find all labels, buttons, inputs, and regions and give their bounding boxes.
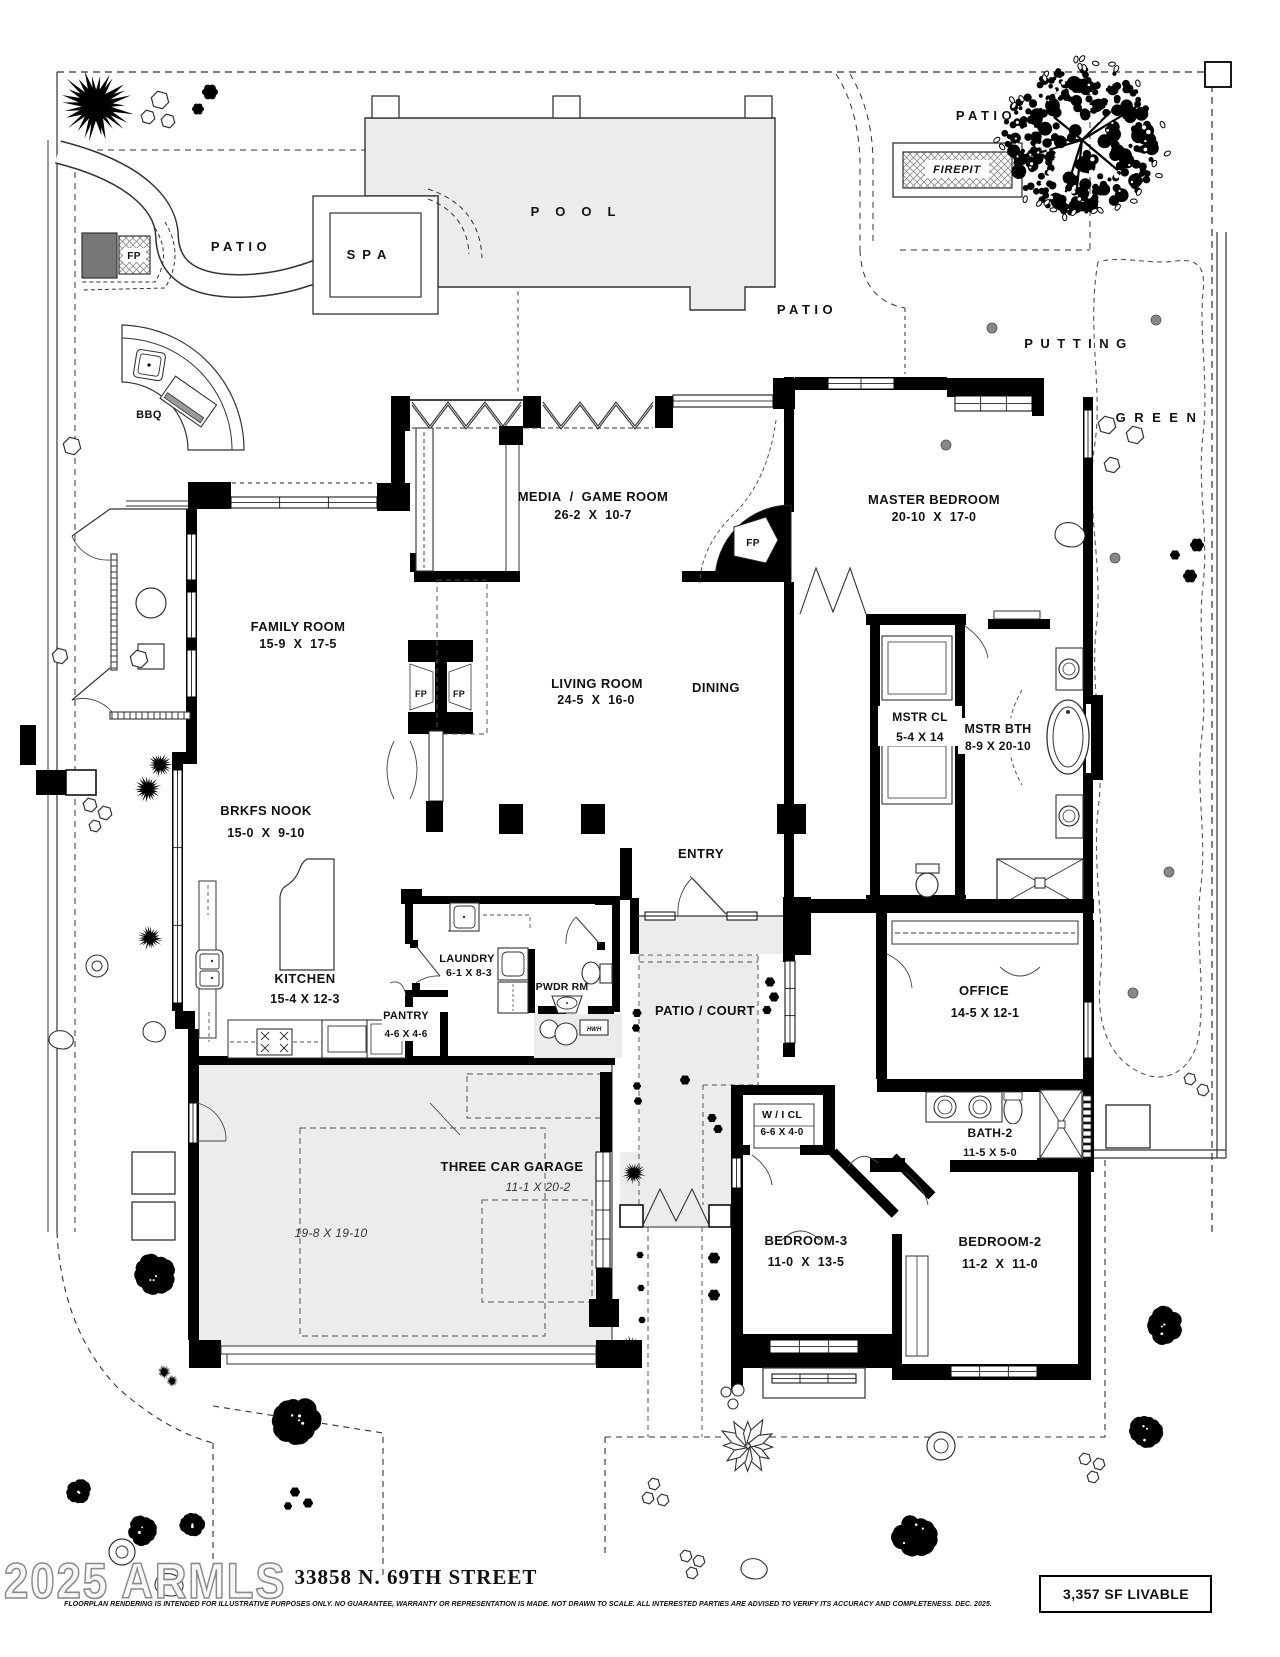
- svg-text:15-9 X 17-5: 15-9 X 17-5: [259, 637, 336, 651]
- svg-text:26-2 X 10-7: 26-2 X 10-7: [554, 508, 631, 522]
- svg-text:PWDR RM: PWDR RM: [536, 981, 589, 993]
- svg-text:5-4 X 14: 5-4 X 14: [896, 730, 944, 744]
- svg-text:ENTRY: ENTRY: [678, 846, 724, 861]
- svg-text:4-6 X 4-6: 4-6 X 4-6: [385, 1029, 428, 1040]
- svg-text:FP: FP: [127, 251, 140, 262]
- svg-text:20-10 X 17-0: 20-10 X 17-0: [892, 510, 977, 524]
- svg-text:PANTRY: PANTRY: [383, 1010, 429, 1022]
- svg-text:LAUNDRY: LAUNDRY: [439, 953, 495, 965]
- svg-text:SPA: SPA: [347, 247, 394, 262]
- svg-text:FLOORPLAN RENDERING IS INTENDE: FLOORPLAN RENDERING IS INTENDED FOR ILLU…: [64, 1600, 992, 1608]
- svg-text:POOL: POOL: [531, 204, 632, 219]
- svg-text:15-4 X 12-3: 15-4 X 12-3: [270, 992, 340, 1006]
- svg-text:FP: FP: [415, 689, 427, 699]
- svg-text:BRKFS NOOK: BRKFS NOOK: [220, 803, 312, 818]
- svg-text:MEDIA / GAME ROOM: MEDIA / GAME ROOM: [518, 489, 669, 504]
- svg-text:11-0 X 13-5: 11-0 X 13-5: [768, 1255, 845, 1269]
- svg-text:BATH-2: BATH-2: [968, 1126, 1013, 1140]
- svg-text:KITCHEN: KITCHEN: [274, 971, 335, 986]
- svg-text:HWH: HWH: [587, 1027, 602, 1033]
- svg-text:FIREPIT: FIREPIT: [933, 164, 981, 176]
- svg-text:11-5 X 5-0: 11-5 X 5-0: [963, 1147, 1017, 1159]
- svg-text:PUTTING: PUTTING: [1024, 336, 1134, 351]
- svg-text:24-5 X 16-0: 24-5 X 16-0: [557, 693, 634, 707]
- svg-text:6-1 X 8-3: 6-1 X 8-3: [446, 967, 492, 979]
- svg-text:PATIO / COURT: PATIO / COURT: [655, 1003, 755, 1018]
- svg-text:OFFICE: OFFICE: [959, 983, 1009, 998]
- svg-text:19-8 X 19-10: 19-8 X 19-10: [295, 1226, 368, 1240]
- svg-text:14-5 X 12-1: 14-5 X 12-1: [951, 1006, 1020, 1020]
- svg-text:MSTR BTH: MSTR BTH: [965, 722, 1032, 736]
- svg-text:FP: FP: [453, 689, 465, 699]
- svg-text:BBQ: BBQ: [136, 409, 162, 421]
- svg-text:15-0 X 9-10: 15-0 X 9-10: [227, 826, 304, 840]
- svg-text:PATIO: PATIO: [956, 108, 1016, 123]
- svg-text:3,357 SF LIVABLE: 3,357 SF LIVABLE: [1063, 1586, 1189, 1602]
- svg-text:LIVING ROOM: LIVING ROOM: [551, 676, 643, 691]
- svg-text:PATIO: PATIO: [211, 239, 271, 254]
- svg-text:11-1 X 20-2: 11-1 X 20-2: [505, 1180, 570, 1194]
- svg-text:BEDROOM-2: BEDROOM-2: [958, 1234, 1041, 1249]
- svg-text:W / I CL: W / I CL: [762, 1109, 802, 1121]
- svg-text:THREE CAR GARAGE: THREE CAR GARAGE: [441, 1159, 584, 1174]
- svg-text:FP: FP: [746, 538, 759, 549]
- svg-text:33858 N. 69TH STREET: 33858 N. 69TH STREET: [295, 1565, 538, 1589]
- svg-text:MSTR CL: MSTR CL: [892, 710, 947, 724]
- svg-text:PATIO: PATIO: [777, 302, 837, 317]
- svg-text:BEDROOM-3: BEDROOM-3: [764, 1233, 847, 1248]
- svg-text:GREEN: GREEN: [1116, 410, 1205, 425]
- svg-text:DINING: DINING: [692, 680, 740, 695]
- svg-text:11-2 X 11-0: 11-2 X 11-0: [962, 1257, 1038, 1271]
- svg-text:MASTER BEDROOM: MASTER BEDROOM: [868, 492, 1000, 507]
- svg-text:8-9 X 20-10: 8-9 X 20-10: [965, 739, 1031, 753]
- svg-text:6-6 X 4-0: 6-6 X 4-0: [761, 1127, 804, 1138]
- svg-text:FAMILY ROOM: FAMILY ROOM: [251, 619, 346, 634]
